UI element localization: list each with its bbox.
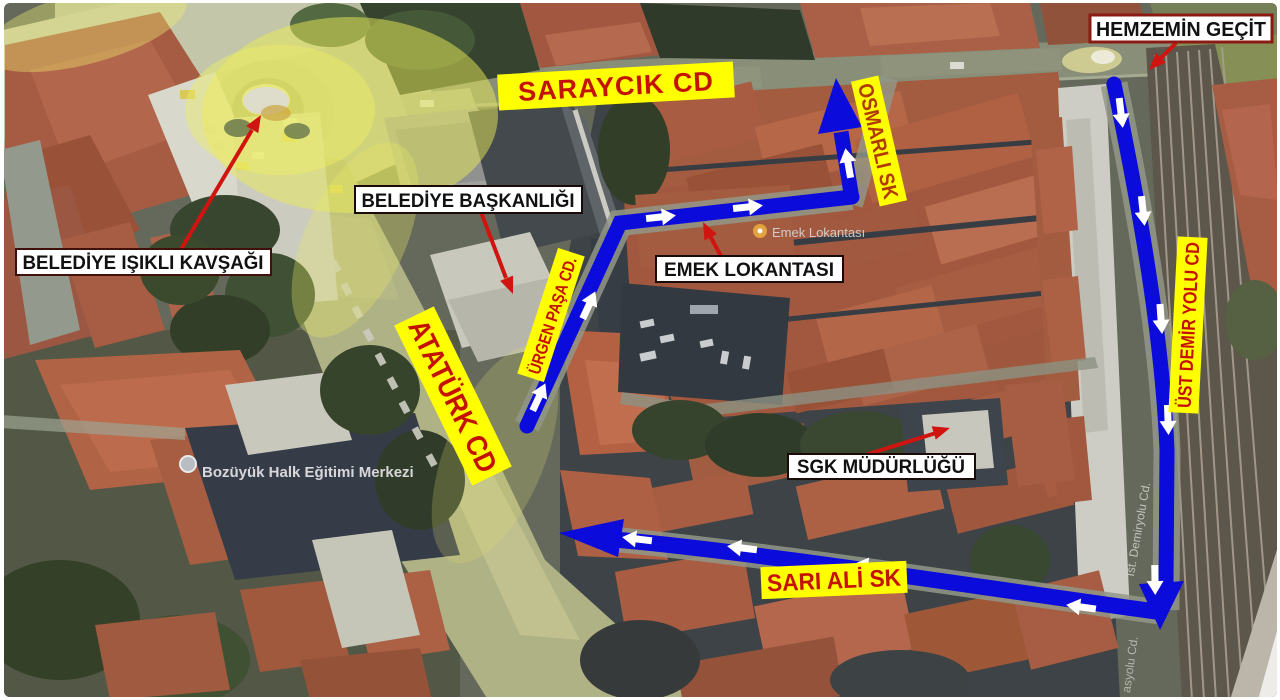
svg-text:SGK MÜDÜRLÜĞÜ: SGK MÜDÜRLÜĞÜ [797, 456, 965, 478]
svg-text:Emek Lokantası: Emek Lokantası [772, 225, 865, 240]
svg-text:EMEK LOKANTASI: EMEK LOKANTASI [664, 260, 834, 281]
svg-text:BELEDİYE IŞIKLI KAVŞAĞI: BELEDİYE IŞIKLI KAVŞAĞI [23, 252, 264, 274]
svg-text:Bozüyük Halk Eğitimi Merkezi: Bozüyük Halk Eğitimi Merkezi [202, 464, 414, 481]
svg-text:HEMZEMİN GEÇİT: HEMZEMİN GEÇİT [1096, 18, 1266, 41]
svg-text:BELEDİYE BAŞKANLIĞI: BELEDİYE BAŞKANLIĞI [362, 190, 575, 212]
